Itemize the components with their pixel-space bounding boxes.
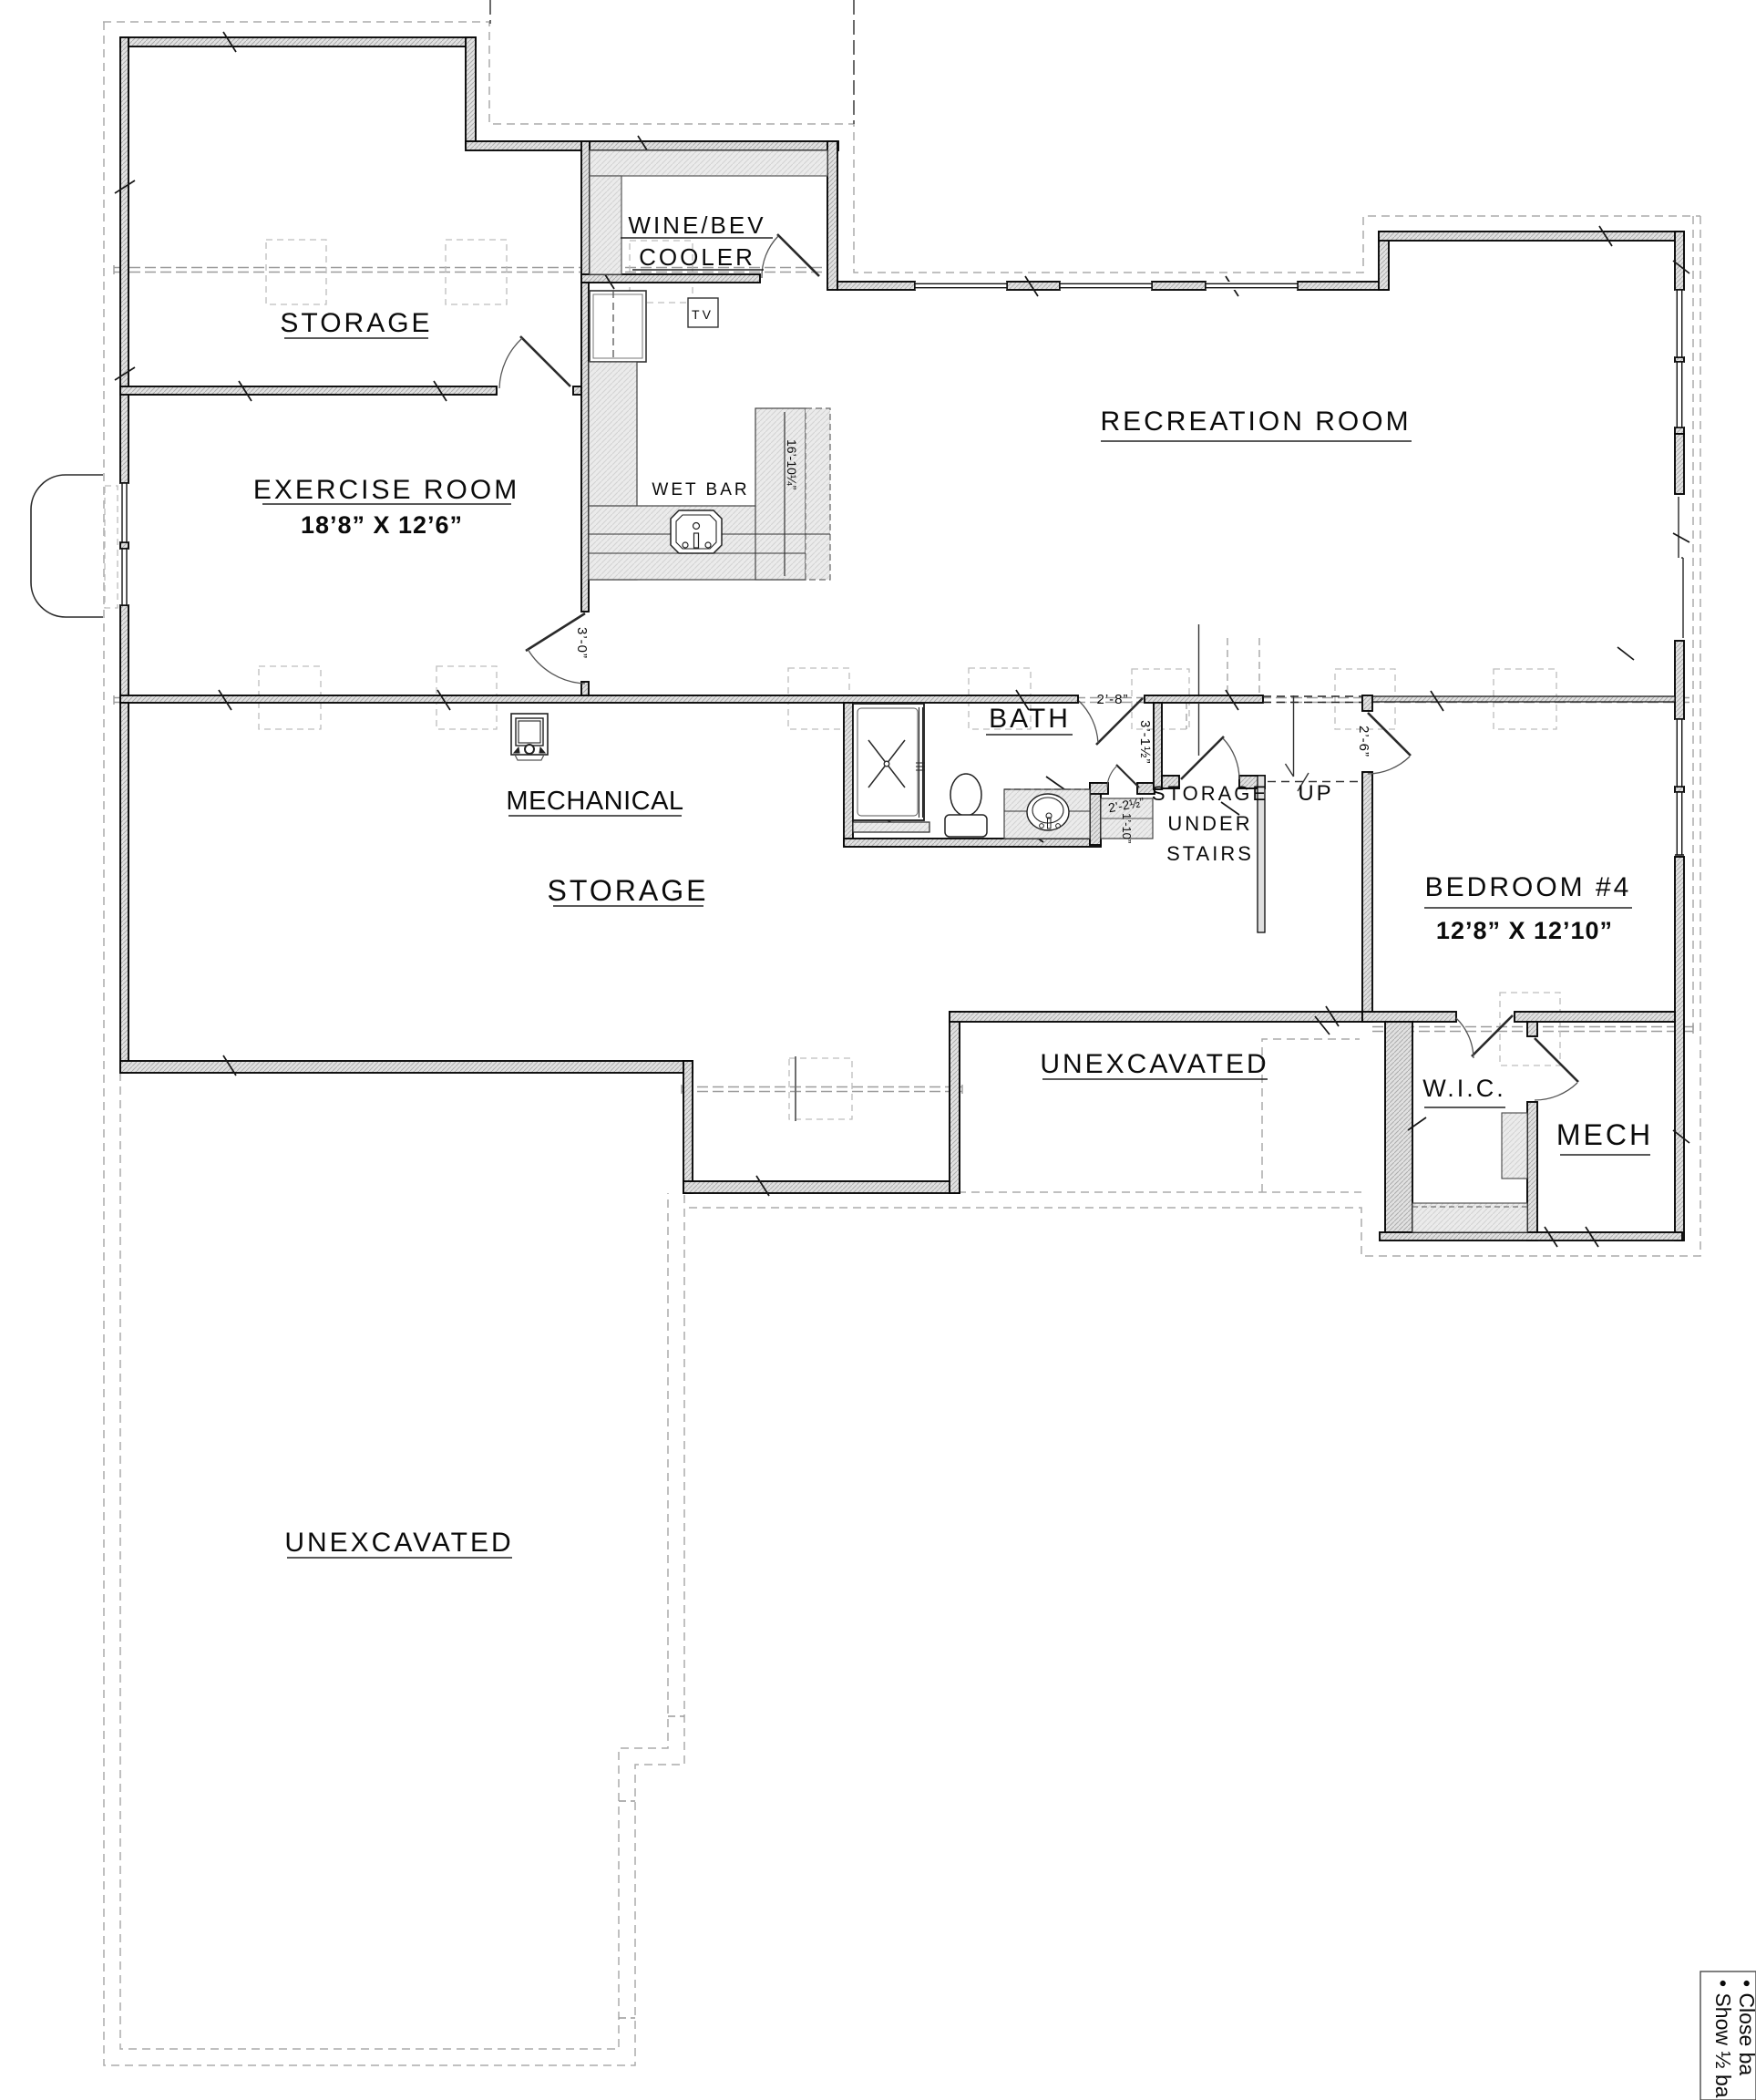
svg-text:3’-0”: 3’-0”: [574, 627, 590, 659]
svg-text:18’8” X 12’6”: 18’8” X 12’6”: [301, 511, 463, 539]
svg-text:STORAGE: STORAGE: [1152, 782, 1268, 805]
svg-text:UNEXCAVATED: UNEXCAVATED: [284, 1528, 513, 1558]
svg-text:UP: UP: [1298, 781, 1333, 806]
svg-text:BATH: BATH: [989, 704, 1071, 734]
svg-text:2’-8”: 2’-8”: [1096, 692, 1128, 707]
svg-text:• Close ba: • Close ba: [1735, 1980, 1756, 2075]
svg-text:W.I.C.: W.I.C.: [1422, 1075, 1506, 1102]
svg-text:• Show ½ ba: • Show ½ ba: [1711, 1980, 1735, 2098]
svg-text:COOLER: COOLER: [639, 243, 755, 271]
svg-text:STAIRS: STAIRS: [1166, 842, 1254, 865]
svg-text:12’8” X 12’10”: 12’8” X 12’10”: [1436, 917, 1613, 944]
svg-text:3’-1½”: 3’-1½”: [1137, 720, 1153, 765]
svg-text:16’-10¼”: 16’-10¼”: [785, 439, 799, 490]
svg-text:RECREATION ROOM: RECREATION ROOM: [1100, 407, 1411, 437]
svg-text:WET BAR: WET BAR: [652, 480, 749, 499]
svg-text:WINE/BEV: WINE/BEV: [628, 211, 765, 239]
svg-text:EXERCISE ROOM: EXERCISE ROOM: [253, 475, 519, 505]
svg-text:1’-10”: 1’-10”: [1120, 813, 1134, 843]
svg-text:UNEXCAVATED: UNEXCAVATED: [1040, 1049, 1268, 1079]
svg-text:2’-6”: 2’-6”: [1356, 726, 1371, 757]
svg-text:STORAGE: STORAGE: [280, 308, 432, 338]
svg-text:BEDROOM #4: BEDROOM #4: [1425, 872, 1632, 902]
svg-text:TV: TV: [692, 307, 714, 322]
svg-text:UNDER: UNDER: [1167, 812, 1252, 835]
svg-text:MECH: MECH: [1556, 1118, 1653, 1151]
svg-text:MECHANICAL: MECHANICAL: [506, 787, 683, 816]
svg-text:STORAGE: STORAGE: [548, 874, 709, 907]
